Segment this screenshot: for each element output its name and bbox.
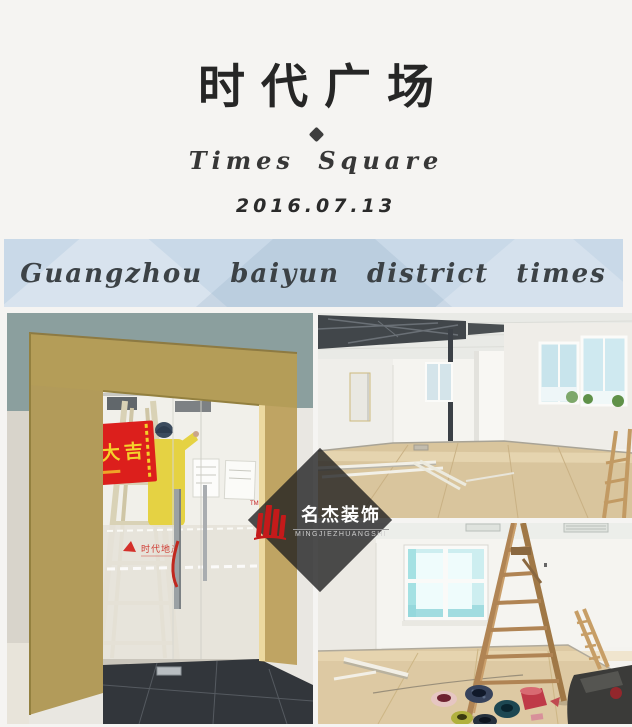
- photo-empty-office: [318, 313, 632, 518]
- page: 时代广场 Times Square 2016.07.13 Guangzhou b…: [0, 0, 632, 727]
- brand-name-en: MINGJIEZHUANGSHI: [295, 531, 387, 538]
- diamond-separator-icon: [309, 127, 325, 143]
- page-title: 时代广场: [0, 48, 632, 117]
- photo-ladder-room: [318, 523, 632, 724]
- window: [402, 545, 490, 626]
- location-banner-text: Guangzhou baiyun district times square: [4, 239, 623, 307]
- door-closer: [175, 401, 211, 412]
- page-subtitle: Times Square: [0, 146, 632, 175]
- photo-ladder-room-art: [318, 523, 632, 724]
- location-banner: Guangzhou baiyun district times square: [4, 239, 623, 307]
- floor-vent: [414, 445, 428, 450]
- floor-plate: [157, 667, 181, 675]
- watermark: TM 名杰装饰 MINGJIEZHUANGSHI: [250, 489, 392, 549]
- watermark-text: 名杰装饰 MINGJIEZHUANGSHI: [293, 501, 389, 538]
- doorway: [350, 373, 370, 421]
- brand-name-cn: 名杰装饰: [301, 501, 381, 527]
- company-logo-icon: TM: [250, 497, 288, 541]
- project-date: 2016.07.13: [0, 195, 632, 217]
- brand-divider: [293, 529, 389, 530]
- tm-mark: TM: [250, 501, 259, 507]
- photo-empty-office-art: [318, 313, 632, 518]
